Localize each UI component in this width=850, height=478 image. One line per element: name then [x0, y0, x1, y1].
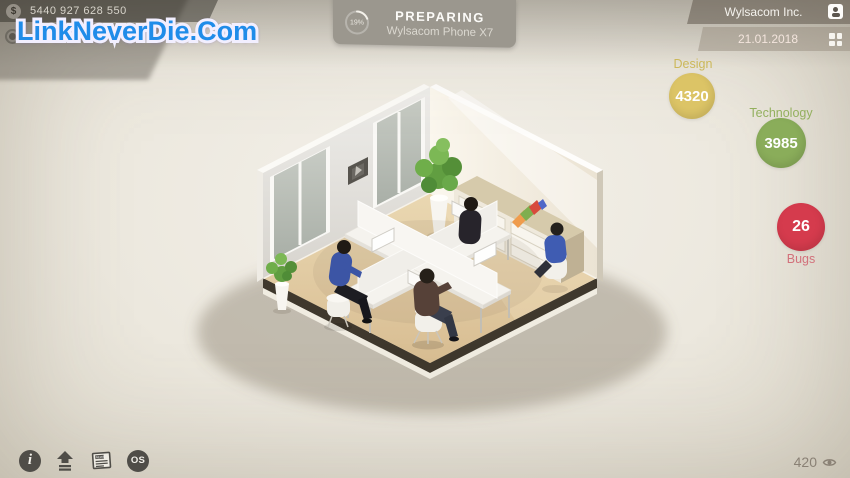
current-date: 21.01.2018: [714, 32, 822, 46]
followers-counter: 420: [794, 454, 837, 470]
design-value-circle[interactable]: 4320: [669, 73, 715, 119]
production-product-name: Wylsacom Phone X7: [372, 24, 508, 39]
production-status: PREPARING: [372, 7, 508, 25]
newspaper-icon: NEWS: [93, 452, 111, 468]
calendar-grid-icon: [829, 33, 842, 46]
date-bar[interactable]: 21.01.2018: [698, 27, 850, 51]
bugs-label: Bugs: [777, 252, 825, 266]
game-screen: $ 5440 927 628 550 LinkNeverDie.Com Link…: [0, 0, 850, 478]
upload-arrow-icon: [57, 451, 73, 471]
design-label: Design: [664, 57, 722, 71]
bugs-value-circle[interactable]: 26: [777, 203, 825, 251]
os-button[interactable]: OS: [127, 450, 149, 472]
watermark: LinkNeverDie.Com LinkNeverDie.Com: [17, 18, 257, 45]
info-icon: i: [28, 453, 32, 468]
production-progress-label: 19%: [342, 7, 372, 38]
info-button[interactable]: i: [19, 450, 41, 472]
technology-value-circle[interactable]: 3985: [756, 118, 806, 168]
news-icon-label: NEWS: [96, 455, 105, 460]
company-name: Wylsacom Inc.: [705, 5, 822, 19]
production-panel[interactable]: 19% PREPARING Wylsacom Phone X7: [333, 0, 516, 48]
person-badge-icon: [828, 4, 843, 19]
company-bar[interactable]: Wylsacom Inc.: [687, 0, 850, 24]
eye-icon: [822, 457, 837, 468]
upload-button[interactable]: [54, 450, 76, 472]
followers-value: 420: [794, 454, 817, 470]
bottom-toolbar: i NEWS OS: [19, 449, 149, 472]
production-progress-ring: 19%: [342, 7, 372, 38]
news-button[interactable]: NEWS: [89, 449, 114, 472]
os-icon-label: OS: [131, 455, 145, 466]
office-room-scene[interactable]: [0, 0, 850, 478]
watermark-text: LinkNeverDie.Com: [17, 16, 257, 46]
